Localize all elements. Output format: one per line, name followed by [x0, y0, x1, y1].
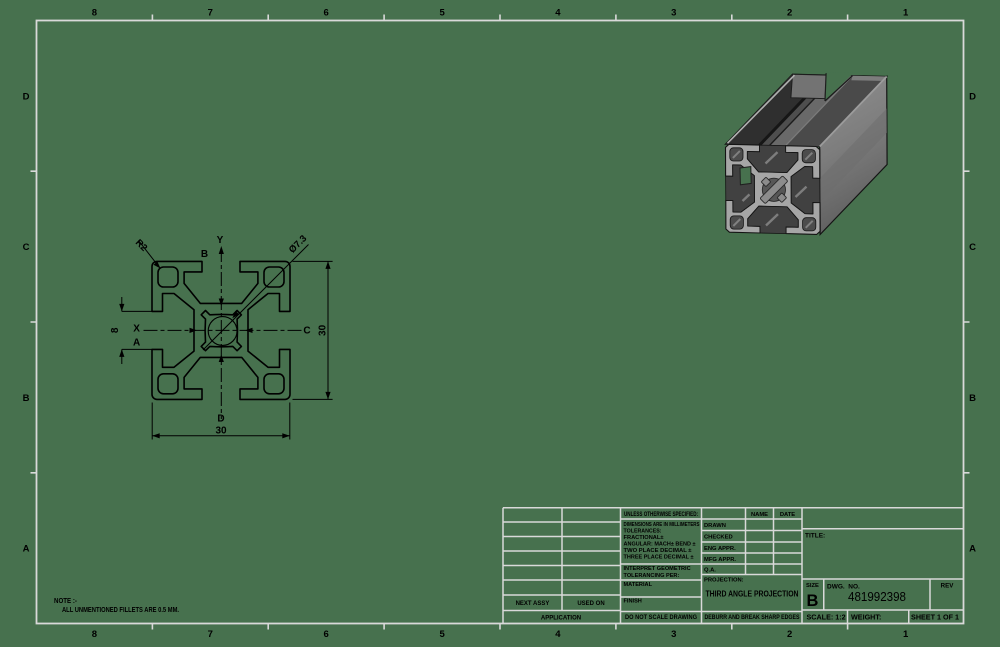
svg-text:D: D: [23, 91, 30, 102]
svg-text:7: 7: [208, 629, 213, 640]
svg-text:DEBURR AND BREAK SHARP EDGES: DEBURR AND BREAK SHARP EDGES: [705, 615, 800, 621]
svg-text:THREE PLACE DECIMAL ±: THREE PLACE DECIMAL ±: [624, 555, 694, 561]
svg-text:DIMENSIONS ARE IN MILLIMETERS: DIMENSIONS ARE IN MILLIMETERS: [624, 522, 700, 528]
svg-text:7: 7: [208, 8, 213, 19]
svg-text:B: B: [807, 592, 819, 610]
svg-text:3: 3: [671, 8, 676, 19]
svg-text:ALL UNMENTIONED FILLETS ARE 0.: ALL UNMENTIONED FILLETS ARE 0.5 MM.: [62, 607, 179, 614]
svg-text:4: 4: [555, 8, 561, 19]
svg-text:CHECKED: CHECKED: [704, 535, 733, 541]
svg-text:INTERPRET GEOMETRIC: INTERPRET GEOMETRIC: [624, 566, 691, 572]
svg-text:A: A: [133, 338, 140, 349]
svg-text:B: B: [969, 393, 976, 404]
svg-text:Q.A.: Q.A.: [704, 568, 716, 574]
svg-text:30: 30: [215, 426, 227, 437]
svg-text:8: 8: [92, 8, 97, 19]
svg-text:DRAWN: DRAWN: [704, 523, 726, 529]
svg-text:2: 2: [787, 629, 792, 640]
svg-text:TOLERANCING PER:: TOLERANCING PER:: [624, 573, 680, 579]
svg-text:2: 2: [787, 8, 792, 19]
svg-text:X: X: [133, 324, 140, 335]
svg-text:B: B: [201, 249, 208, 260]
svg-text:Ø7.3: Ø7.3: [287, 233, 309, 255]
svg-text:SHEET 1 OF 1: SHEET 1 OF 1: [911, 613, 959, 622]
svg-text:TWO PLACE DECIMAL ±: TWO PLACE DECIMAL ±: [624, 548, 692, 554]
svg-text:30: 30: [318, 324, 329, 336]
svg-text:SCALE: 1:2: SCALE: 1:2: [807, 613, 846, 622]
svg-text:PROJECTION:: PROJECTION:: [704, 578, 744, 584]
svg-text:1: 1: [903, 8, 909, 19]
svg-text:A: A: [969, 544, 976, 555]
svg-text:MATERIAL: MATERIAL: [624, 582, 653, 588]
svg-text:FRACTIONAL±: FRACTIONAL±: [624, 535, 664, 541]
svg-text:DO NOT SCALE DRAWING: DO NOT SCALE DRAWING: [625, 615, 697, 621]
svg-text:REV: REV: [941, 583, 955, 590]
svg-text:D: D: [969, 91, 976, 102]
svg-text:C: C: [303, 326, 310, 337]
svg-text:C: C: [969, 242, 976, 253]
svg-text:3: 3: [671, 629, 676, 640]
svg-text:NOTE :-: NOTE :-: [54, 598, 78, 605]
svg-text:8: 8: [92, 629, 97, 640]
svg-text:5: 5: [439, 629, 445, 640]
svg-text:TOLERANCES:: TOLERANCES:: [624, 529, 662, 535]
svg-text:481992398: 481992398: [848, 590, 906, 604]
svg-text:APPLICATION: APPLICATION: [541, 616, 581, 622]
svg-text:B: B: [23, 393, 30, 404]
svg-text:8: 8: [110, 327, 121, 333]
svg-text:Y: Y: [217, 235, 224, 246]
svg-text:6: 6: [324, 629, 329, 640]
svg-text:5: 5: [439, 8, 445, 19]
svg-text:FINISH: FINISH: [624, 599, 642, 605]
svg-text:UNLESS OTHERWISE SPECIFIED:: UNLESS OTHERWISE SPECIFIED:: [624, 512, 698, 518]
svg-text:SIZE: SIZE: [806, 583, 819, 589]
svg-text:A: A: [23, 544, 30, 555]
svg-text:MFG APPR.: MFG APPR.: [704, 557, 736, 563]
svg-text:1: 1: [903, 629, 909, 640]
svg-text:ANGULAR: MACH± BEND ±: ANGULAR: MACH± BEND ±: [624, 542, 696, 548]
svg-text:NAME: NAME: [751, 512, 768, 518]
svg-text:ENG APPR.: ENG APPR.: [704, 546, 736, 552]
svg-text:C: C: [23, 242, 30, 253]
svg-text:6: 6: [324, 8, 329, 19]
svg-text:DATE: DATE: [780, 512, 795, 518]
svg-text:THIRD ANGLE PROJECTION: THIRD ANGLE PROJECTION: [706, 590, 799, 599]
svg-text:TITLE:: TITLE:: [805, 533, 825, 540]
svg-text:WEIGHT:: WEIGHT:: [851, 613, 881, 622]
svg-text:4: 4: [555, 629, 561, 640]
svg-text:NEXT ASSY: NEXT ASSY: [516, 601, 550, 607]
svg-text:D: D: [217, 414, 224, 425]
svg-text:USED ON: USED ON: [577, 601, 604, 607]
